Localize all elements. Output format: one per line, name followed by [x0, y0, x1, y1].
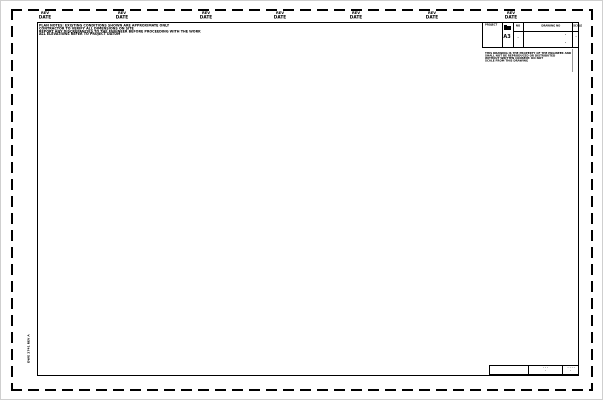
project-label: PROJECT — [485, 24, 497, 27]
cell-value: · — [568, 369, 574, 372]
top-stamp-6: REV DATE — [406, 11, 459, 20]
bottom-strip-cell-sheet: · · · · · — [568, 366, 574, 372]
top-stamp-3: REV DATE — [180, 11, 233, 20]
top-stamp-value: DATE — [19, 15, 72, 19]
top-stamp-2: REV DATE — [96, 11, 149, 20]
title-block-divider — [523, 23, 524, 48]
side-label-wrap: DWG 2741 REV A — [27, 363, 123, 374]
bottom-strip-divider — [562, 366, 563, 375]
general-notes: PLAN NOTES: EXISTING CONDITIONS SHOWN AR… — [39, 24, 201, 36]
number-label: NO — [515, 25, 521, 28]
top-stamp-value: DATE — [254, 15, 307, 19]
bottom-strip-divider — [528, 366, 529, 375]
title-block-header-rule — [513, 31, 579, 32]
format-icon — [504, 26, 511, 30]
title-block: PROJECT A3 NO · DRAWING NO · · SCALE · — [482, 22, 579, 48]
copyright-note: THIS DRAWING IS THE PROPERTY OF THE ENGI… — [485, 52, 571, 62]
top-stamp-value: DATE — [406, 15, 459, 19]
top-stamp-value: DATE — [330, 15, 383, 19]
note-line: ALL ELEVATIONS REFER TO PROJECT DATUM — [39, 33, 201, 36]
drawing-number-value: · — [565, 41, 566, 45]
bottom-strip: · · · · · · · · · — [489, 365, 579, 375]
drawing-number-value: · — [565, 33, 566, 37]
sheet-size-code: A3 — [503, 34, 511, 39]
top-stamp-value: DATE — [96, 15, 149, 19]
top-stamp-5: REV DATE — [330, 11, 383, 20]
scale-value: · — [572, 35, 580, 39]
top-stamp-value: DATE — [180, 15, 233, 19]
page-border-right — [591, 9, 593, 391]
page-border-bottom — [11, 389, 593, 391]
scale-label: SCALE — [573, 25, 579, 28]
top-stamp-7: REV DATE — [485, 11, 538, 20]
cell-value: · — [540, 369, 552, 372]
top-stamp-value: DATE — [485, 15, 538, 19]
drawing-number-label: DRAWING NO — [541, 25, 552, 28]
page-border-left — [11, 9, 13, 391]
number-value: · — [514, 36, 522, 40]
drawing-sheet: REV DATE REV DATE REV DATE REV DATE REV … — [0, 0, 603, 400]
top-stamp-1: REV DATE — [19, 11, 72, 20]
note-line: SCALE FROM THIS DRAWING — [485, 60, 571, 63]
fold-line — [572, 49, 573, 72]
drawing-frame — [37, 22, 579, 376]
side-label: DWG 2741 REV A — [27, 334, 30, 363]
bottom-strip-cell-date: · · · · — [540, 366, 552, 372]
top-stamp-4: REV DATE — [254, 11, 307, 20]
